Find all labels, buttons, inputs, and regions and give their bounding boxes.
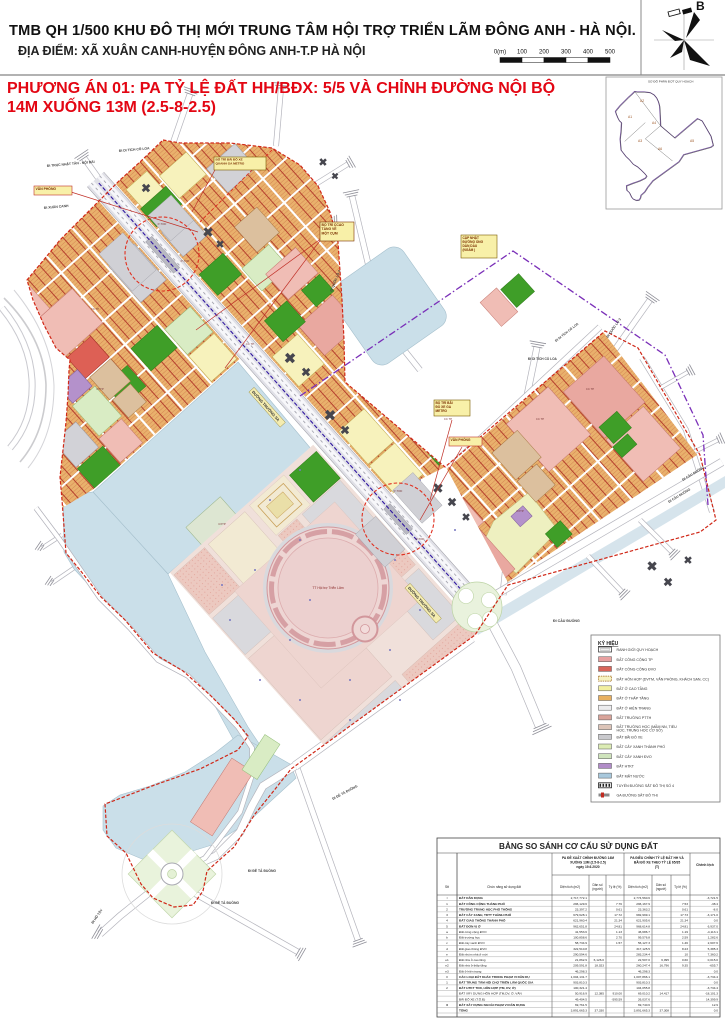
svg-text:903,810.3: 903,810.3 (573, 981, 587, 985)
svg-text:A1: A1 (628, 115, 632, 119)
svg-text:e: e (446, 952, 448, 956)
svg-text:17.73: 17.73 (680, 913, 688, 917)
svg-text:46,298.3: 46,298.3 (638, 969, 650, 973)
svg-text:ĐẤT CÔNG CỘNG ĐVO: ĐẤT CÔNG CỘNG ĐVO (617, 667, 657, 672)
svg-text:16,796: 16,796 (660, 964, 670, 968)
svg-text:ĐẤT TRUNG TÂM HỘI CHỢ TRIỂN LÃ: ĐẤT TRUNG TÂM HỘI CHỢ TRIỂN LÃM QUỐC GIA (459, 980, 534, 985)
svg-text:0(m): 0(m) (494, 50, 506, 56)
svg-text:-8.0: -8.0 (713, 908, 719, 912)
svg-text:ĐẤT HTKT: ĐẤT HTKT (617, 765, 635, 769)
svg-text:5,385.3: 5,385.3 (708, 947, 719, 951)
svg-text:14,399.9: 14,399.9 (706, 997, 718, 1001)
svg-text:e3: e3 (445, 969, 449, 973)
svg-text:ĐI HỒ TÂY: ĐI HỒ TÂY (90, 907, 104, 925)
svg-text:ĐI ĐÊ TẢ ĐUỒNG: ĐI ĐÊ TẢ ĐUỒNG (211, 900, 239, 905)
svg-text:296,167.9: 296,167.9 (636, 902, 650, 906)
svg-text:ngày 19.6.2020: ngày 19.6.2020 (576, 865, 599, 869)
svg-text:Đất nhà ở thấp tầng: Đất nhà ở thấp tầng (459, 964, 487, 968)
svg-text:-3,734.4: -3,734.4 (707, 975, 719, 979)
svg-text:962,651.8: 962,651.8 (573, 924, 587, 928)
svg-text:CXTP: CXTP (516, 509, 524, 513)
svg-text:1.13: 1.13 (616, 930, 622, 934)
svg-text:17.72: 17.72 (614, 913, 622, 917)
svg-text:ĐI ĐÊ TẢ ĐUỒNG: ĐI ĐÊ TẢ ĐUỒNG (248, 868, 276, 873)
svg-text:23,363.2: 23,363.2 (638, 908, 650, 912)
svg-text:56,127.3: 56,127.3 (638, 941, 650, 945)
svg-text:ĐẤT Ở CAO TẦNG: ĐẤT Ở CAO TẦNG (617, 686, 648, 691)
svg-text:-18,101.3: -18,101.3 (705, 992, 718, 996)
svg-text:Đất nhà ở cao tầng: Đất nhà ở cao tầng (459, 958, 486, 962)
svg-text:ĐẤT DÂN DỤNG: ĐẤT DÂN DỤNG (459, 895, 483, 900)
svg-text:910.00: 910.00 (613, 992, 623, 996)
svg-text:1: 1 (446, 981, 448, 985)
svg-text:-655.7: -655.7 (709, 964, 718, 968)
svg-text:0,015.0: 0,015.0 (708, 958, 719, 962)
svg-text:ĐẤT MẶT NƯỚC: ĐẤT MẶT NƯỚC (617, 773, 645, 778)
svg-text:1,282.6: 1,282.6 (708, 936, 719, 940)
svg-text:37,308: 37,308 (660, 1009, 670, 1013)
svg-text:I: I (447, 896, 448, 900)
svg-text:2.70: 2.70 (616, 936, 622, 940)
svg-text:0.0: 0.0 (714, 981, 719, 985)
svg-text:A3: A3 (638, 139, 642, 143)
svg-text:5: 5 (446, 924, 448, 928)
svg-text:ĐI DI TÍCH CỔ LOA: ĐI DI TÍCH CỔ LOA (528, 356, 558, 361)
svg-text:41,553.6: 41,553.6 (575, 930, 587, 934)
svg-text:d: d (446, 947, 448, 951)
svg-text:3,891,665.3: 3,891,665.3 (634, 1009, 651, 1013)
svg-text:-3,171.0: -3,171.0 (707, 913, 719, 917)
svg-text:968,614.8: 968,614.8 (636, 924, 650, 928)
svg-text:296,129.6: 296,129.6 (573, 902, 587, 906)
svg-text:7.76: 7.76 (616, 902, 622, 906)
svg-text:ĐẤT TRƯỜNG PTTH: ĐẤT TRƯỜNG PTTH (617, 715, 652, 720)
svg-text:69,010.2: 69,010.2 (638, 992, 650, 996)
svg-text:49,404.5: 49,404.5 (575, 997, 587, 1001)
svg-text:50,916.9: 50,916.9 (575, 992, 587, 996)
svg-text:ĐẤT CÂY XANH THÀNH PHỐ: ĐẤT CÂY XANH THÀNH PHỐ (617, 744, 666, 749)
svg-text:46,686.7: 46,686.7 (638, 930, 650, 934)
svg-text:8.23: 8.23 (682, 947, 688, 951)
svg-text:682,999.1: 682,999.1 (636, 913, 650, 917)
svg-text:GA ĐƯỜNG SẮT ĐÔ THỊ: GA ĐƯỜNG SẮT ĐÔ THỊ (617, 793, 658, 798)
svg-text:Đất ở hiện trạng: Đất ở hiện trạng (459, 969, 482, 973)
svg-text:TRƯỜNG TRUNG HỌC PHỔ THÔNG: TRƯỜNG TRUNG HỌC PHỔ THÔNG (459, 907, 513, 912)
svg-text:P-TOD: P-TOD (181, 259, 190, 263)
svg-text:ĐẤT CÔNG CỘNG TP: ĐẤT CÔNG CỘNG TP (617, 657, 654, 662)
svg-text:ĐẤT ĐƠN VỊ Ở: ĐẤT ĐƠN VỊ Ở (459, 923, 481, 928)
svg-text:A2: A2 (640, 99, 644, 103)
svg-text:2.59: 2.59 (682, 936, 688, 940)
svg-text:ĐẤT GIAO THÔNG THÀNH PHỐ: ĐẤT GIAO THÔNG THÀNH PHỐ (459, 918, 506, 923)
svg-text:A4: A4 (652, 121, 656, 125)
svg-text:KÝ HIỆU: KÝ HIỆU (598, 639, 619, 647)
svg-text:24.81: 24.81 (680, 924, 688, 928)
svg-text:ĐẤT CÂY XANH, TDTT THÀNH PHỐ: ĐẤT CÂY XANH, TDTT THÀNH PHỐ (459, 912, 512, 917)
svg-text:(người): (người) (592, 887, 603, 891)
svg-text:14,417: 14,417 (660, 992, 670, 996)
svg-text:PA ĐỀ XUẤT CHỈNH ĐƯỜNG 14M: PA ĐỀ XUẤT CHỈNH ĐƯỜNG 14M (562, 855, 614, 860)
svg-text:Tỷ lệ (%): Tỷ lệ (%) (674, 885, 687, 889)
svg-text:CÁC LOẠI ĐẤT KHÁC TRONG PHẠM V: CÁC LOẠI ĐẤT KHÁC TRONG PHẠM VI DÂN DỤ (459, 974, 530, 979)
svg-text:209,591.8: 209,591.8 (573, 964, 587, 968)
svg-text:A5: A5 (690, 139, 694, 143)
svg-text:ĐI DI TÍCH CỔ LOA: ĐI DI TÍCH CỔ LOA (554, 321, 580, 343)
svg-text:290,594.6: 290,594.6 (573, 952, 587, 956)
svg-text:PA ĐIỀU CHỈNH TỶ LỆ ĐẤT HH VÀ: PA ĐIỀU CHỈNH TỶ LỆ ĐẤT HH VÀ (630, 855, 684, 860)
svg-text:CXTP: CXTP (96, 387, 104, 391)
svg-text:-3,721.5: -3,721.5 (707, 896, 719, 900)
svg-text:e1: e1 (445, 958, 449, 962)
svg-text:104,055.8: 104,055.8 (636, 986, 650, 990)
svg-text:HỌC, TRUNG HỌC CƠ SỞ): HỌC, TRUNG HỌC CƠ SỞ) (617, 728, 663, 733)
svg-text:ĐI XUÂN CANH: ĐI XUÂN CANH (44, 203, 70, 210)
svg-text:VĂN PHÒNG: VĂN PHÒNG (36, 186, 57, 191)
svg-text:-4,113.1: -4,113.1 (707, 930, 718, 934)
svg-text:A6: A6 (658, 147, 662, 151)
svg-text:TUYẾN ĐƯỜNG SẮT ĐÔ THỊ SỐ 4: TUYẾN ĐƯỜNG SẮT ĐÔ THỊ SỐ 4 (617, 783, 675, 788)
svg-text:2: 2 (446, 986, 448, 990)
svg-text:100: 100 (517, 50, 528, 56)
svg-text:ĐẤT Ở THẤP TẦNG: ĐẤT Ở THẤP TẦNG (617, 696, 650, 701)
svg-text:46,298.3: 46,298.3 (575, 969, 587, 973)
svg-text:ĐẤT CÂY XANH ĐVO: ĐẤT CÂY XANH ĐVO (617, 755, 652, 759)
svg-text:P-TOD: P-TOD (394, 489, 403, 493)
svg-text:7.53: 7.53 (682, 902, 688, 906)
svg-text:24.81: 24.81 (614, 924, 622, 928)
svg-text:(T): (T) (655, 865, 659, 869)
svg-text:Tỷ lệ (%): Tỷ lệ (%) (609, 885, 622, 889)
svg-text:-38.4: -38.4 (711, 902, 718, 906)
svg-text:6,937.0: 6,937.0 (708, 924, 719, 928)
svg-text:21.34: 21.34 (614, 919, 622, 923)
svg-text:621,960.4: 621,960.4 (573, 919, 587, 923)
svg-text:100,321.4: 100,321.4 (573, 986, 587, 990)
svg-text:300: 300 (561, 50, 572, 56)
svg-text:II: II (446, 975, 448, 979)
svg-text:903,810.3: 903,810.3 (636, 981, 650, 985)
svg-text:MỘT CỤM: MỘT CỤM (322, 230, 338, 235)
svg-text:69,761.5: 69,761.5 (575, 1003, 587, 1007)
svg-text:317,125.5: 317,125.5 (636, 947, 650, 951)
svg-text:2: 2 (446, 908, 448, 912)
svg-text:QUANH GA METRO: QUANH GA METRO (216, 162, 245, 166)
svg-text:0.60: 0.60 (682, 958, 688, 962)
svg-text:0.61: 0.61 (616, 908, 622, 912)
svg-text:ĐẤT XÂY DỰNG HỖN HỢP (TM,DV, Ở: ĐẤT XÂY DỰNG HỖN HỢP (TM,DV, Ở, VĂN (459, 991, 522, 996)
svg-text:18,023: 18,023 (595, 964, 605, 968)
svg-text:1.46: 1.46 (682, 941, 688, 945)
svg-text:Đất nhóm nhà ở mới: Đất nhóm nhà ở mới (459, 952, 488, 956)
svg-text:Đất trường học: Đất trường học (459, 936, 480, 940)
svg-text:400: 400 (583, 50, 594, 56)
svg-text:b: b (446, 936, 448, 940)
svg-text:26,037.6: 26,037.6 (638, 997, 650, 1001)
svg-text:1: 1 (446, 902, 448, 906)
svg-text:ĐẤT CÔNG CỘNG THÀNH PHỐ: ĐẤT CÔNG CỘNG THÀNH PHỐ (459, 901, 505, 906)
svg-text:III: III (446, 1003, 449, 1007)
svg-text:0.0: 0.0 (714, 969, 719, 973)
svg-text:METRO: METRO (436, 409, 448, 413)
svg-text:Diện tích (m2): Diện tích (m2) (560, 885, 580, 889)
svg-text:Đất cây xanh ĐVO: Đất cây xanh ĐVO (459, 941, 485, 945)
svg-text:1,007,866.1: 1,007,866.1 (634, 975, 651, 979)
svg-text:(NGẦM ): (NGẦM ) (463, 248, 476, 252)
svg-text:7,360.2: 7,360.2 (708, 952, 719, 956)
svg-text:621,905.6: 621,905.6 (636, 919, 650, 923)
svg-text:23,397.2: 23,397.2 (575, 908, 587, 912)
svg-text:XUỐNG 13M (2.5-8-2.5): XUỐNG 13M (2.5-8-2.5) (570, 860, 606, 865)
svg-text:12,385: 12,385 (595, 992, 605, 996)
svg-text:VĂN PHÒNG: VĂN PHÒNG (451, 437, 471, 442)
svg-text:0.0: 0.0 (714, 1009, 719, 1013)
svg-text:SƠ ĐỒ PHÂN ĐỢT QUY HOẠCH: SƠ ĐỒ PHÂN ĐỢT QUY HOẠCH (648, 79, 693, 84)
svg-text:37,330: 37,330 (595, 1009, 605, 1013)
svg-text:0.0: 0.0 (714, 919, 719, 923)
svg-text:0.61: 0.61 (682, 908, 688, 912)
svg-text:e2: e2 (445, 964, 449, 968)
svg-text:CC TP: CC TP (536, 417, 544, 421)
svg-text:(người): (người) (656, 887, 667, 891)
svg-text:TỔNG: TỔNG (459, 1008, 469, 1013)
svg-text:CC TP: CC TP (246, 342, 254, 346)
svg-text:TT Hội trợ Triển Lãm: TT Hội trợ Triển Lãm (312, 586, 344, 590)
svg-text:Chênh lệch: Chênh lệch (696, 863, 714, 867)
svg-text:CXTP: CXTP (218, 522, 226, 526)
svg-text:ĐI ĐÊ TẢ ĐUỒNG: ĐI ĐÊ TẢ ĐUỒNG (331, 783, 358, 801)
svg-text:-595.59: -595.59 (612, 997, 623, 1001)
svg-text:100,858.6: 100,858.6 (573, 936, 587, 940)
svg-text:99,576.8: 99,576.8 (638, 936, 650, 940)
svg-text:CC TP: CC TP (91, 307, 99, 311)
svg-text:21.34: 21.34 (680, 919, 688, 923)
svg-text:2,717,772.1: 2,717,772.1 (571, 896, 588, 900)
svg-text:BÃI ĐỖ XE (T.Ô.Đ): BÃI ĐỖ XE (T.Ô.Đ) (459, 996, 485, 1001)
svg-text:200: 200 (539, 50, 550, 56)
svg-text:2,607.6: 2,607.6 (708, 941, 719, 945)
svg-text:Đất giao thông ĐVO: Đất giao thông ĐVO (459, 947, 487, 951)
svg-text:P-TOD: P-TOD (158, 222, 167, 226)
svg-text:Stt: Stt (445, 885, 449, 889)
svg-text:ĐI DI TÍCH CỔ LOA: ĐI DI TÍCH CỔ LOA (119, 145, 151, 153)
svg-text:BÃI ĐỖ XE THEO TỶ LỆ 65/35: BÃI ĐỖ XE THEO TỶ LỆ 65/35 (634, 860, 681, 865)
svg-text:CC TP: CC TP (586, 387, 594, 391)
svg-text:ĐẤT HỖN HỢP (DVTM, VĂN PHÒNG,: ĐẤT HỖN HỢP (DVTM, VĂN PHÒNG, KHÁCH SẠN,… (617, 676, 709, 681)
svg-text:6,126.0: 6,126.0 (594, 958, 605, 962)
svg-text:CC TP: CC TP (444, 417, 452, 421)
svg-text:9.35: 9.35 (682, 964, 688, 968)
svg-text:12.9: 12.9 (712, 1003, 718, 1007)
svg-text:ĐẤT XÂY DỰNG NGOÀI PHẠM VI DÂN: ĐẤT XÂY DỰNG NGOÀI PHẠM VI DÂN DỤNG (459, 1002, 526, 1007)
svg-text:1.57: 1.57 (616, 941, 622, 945)
svg-text:a: a (446, 930, 448, 934)
svg-text:BẢNG SO SÁNH CƠ CẤU SỬ DỤNG ĐẤ: BẢNG SO SÁNH CƠ CẤU SỬ DỤNG ĐẤT (499, 840, 658, 851)
svg-text:ĐI CẦU ĐUỐNG: ĐI CẦU ĐUỐNG (553, 618, 580, 623)
svg-text:B: B (696, 0, 705, 13)
svg-text:Đất công cộng ĐVO: Đất công cộng ĐVO (459, 930, 487, 934)
svg-text:322,510.8: 322,510.8 (573, 947, 587, 951)
svg-text:10: 10 (685, 952, 689, 956)
svg-text:21,862.9: 21,862.9 (575, 958, 587, 962)
svg-text:2,774,560.6: 2,774,560.6 (634, 896, 651, 900)
svg-text:1.19: 1.19 (682, 930, 688, 934)
svg-text:Diện tích (m2): Diện tích (m2) (628, 885, 648, 889)
svg-text:1,004,131.7: 1,004,131.7 (571, 975, 588, 979)
svg-text:3: 3 (446, 913, 448, 917)
svg-text:283,234.4: 283,234.4 (636, 952, 650, 956)
svg-text:-3,734.4: -3,734.4 (707, 986, 719, 990)
svg-text:RANH GIỚI QUY HOẠCH: RANH GIỚI QUY HOẠCH (617, 647, 659, 652)
svg-text:22,507.0: 22,507.0 (638, 958, 650, 962)
svg-text:ĐẤT HTKT TOD, HỖN HỢP (TM, DV,: ĐẤT HTKT TOD, HỖN HỢP (TM, DV, Ở) (459, 985, 516, 990)
svg-text:679,628.1: 679,628.1 (573, 913, 587, 917)
svg-text:500: 500 (605, 50, 616, 56)
svg-text:6,095: 6,095 (661, 958, 669, 962)
svg-text:P-TOD: P-TOD (416, 537, 425, 541)
svg-text:58,734.9: 58,734.9 (575, 941, 587, 945)
svg-text:3,891,665.3: 3,891,665.3 (571, 1009, 588, 1013)
svg-text:69,740.6: 69,740.6 (638, 1003, 650, 1007)
svg-text:260,247.4: 260,247.4 (636, 964, 650, 968)
svg-text:ĐẤT BÃI ĐỖ XE: ĐẤT BÃI ĐỖ XE (617, 735, 644, 740)
svg-text:4: 4 (446, 919, 448, 923)
svg-text:ĐẤT Ở HIỆN TRẠNG: ĐẤT Ở HIỆN TRẠNG (617, 705, 652, 710)
svg-text:Chức năng sử dụng đất: Chức năng sử dụng đất (487, 885, 521, 889)
